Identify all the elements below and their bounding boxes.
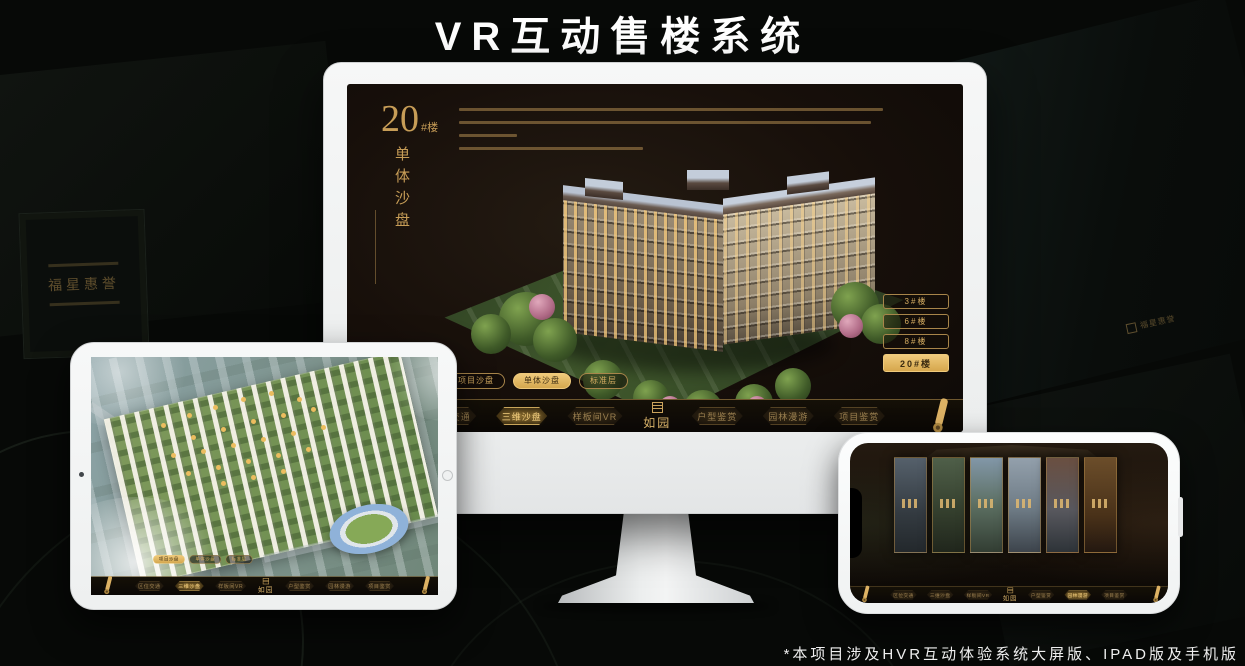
tree xyxy=(533,318,577,362)
tablet-device: 项目沙盘 单体沙盘 标准层 区位交通 三维沙盘 样板间VR 如园 户型鉴赏 园林… xyxy=(70,342,457,610)
gallery-strip[interactable] xyxy=(894,457,927,553)
plaque-text: 福星惠誉 xyxy=(48,273,121,296)
page: 福星惠誉 福星惠誉 VR互动售楼系统 20#楼 单体沙盘 xyxy=(0,0,1245,666)
building-markers[interactable] xyxy=(161,423,166,428)
seal-icon xyxy=(263,578,269,584)
description-line xyxy=(459,121,871,124)
scroll-icon[interactable] xyxy=(931,398,949,432)
tab-standard-floor[interactable]: 标准层 xyxy=(579,373,628,389)
nav-item-label: 三维沙盘 xyxy=(178,582,201,589)
tab-single-sandbox[interactable]: 单体沙盘 xyxy=(513,373,571,389)
nav-item-label: 区位交通 xyxy=(893,591,914,598)
nav-item-label: 项目鉴赏 xyxy=(839,410,879,423)
roof-cap xyxy=(687,170,729,190)
nav-logo[interactable]: 如园 xyxy=(258,578,274,594)
phone-notch xyxy=(850,488,862,558)
nav-item-unit-plans[interactable]: 户型鉴赏 xyxy=(1026,590,1056,600)
tablet-camera xyxy=(79,472,84,477)
nav-item-label: 样板间VR xyxy=(573,410,618,423)
block-header: 20#楼 单体沙盘 xyxy=(381,100,438,234)
scroll-icon[interactable] xyxy=(1152,585,1160,603)
nav-logo[interactable]: 如园 xyxy=(643,402,671,431)
scroll-icon[interactable] xyxy=(103,576,112,595)
nav-item-showroom-vr[interactable]: 样板间VR xyxy=(213,580,248,591)
gallery-strip[interactable] xyxy=(932,457,965,553)
nav-item-label: 三维沙盘 xyxy=(930,591,951,598)
floor-button-8[interactable]: 8#楼 xyxy=(883,334,949,349)
tab-single-sandbox[interactable]: 单体沙盘 xyxy=(189,555,221,564)
block-suffix: #楼 xyxy=(421,122,438,134)
nav-item-3d-sandbox[interactable]: 三维沙盘 xyxy=(925,590,955,600)
tablet-home-button[interactable] xyxy=(442,470,453,481)
nav-item-location-traffic[interactable]: 区位交通 xyxy=(133,580,166,591)
gallery-strips xyxy=(894,457,1117,553)
gallery-strip[interactable] xyxy=(970,457,1003,553)
page-title: VR互动售楼系统 xyxy=(0,4,1245,62)
tablet-bottom-nav: 区位交通 三维沙盘 样板间VR 如园 户型鉴赏 园林漫游 项目鉴赏 xyxy=(91,576,438,595)
tablet-screen: 项目沙盘 单体沙盘 标准层 区位交通 三维沙盘 样板间VR 如园 户型鉴赏 园林… xyxy=(91,357,438,595)
description-line xyxy=(459,108,883,111)
nav-item-showroom-vr[interactable]: 样板间VR xyxy=(962,590,994,600)
nav-item-3d-sandbox[interactable]: 三维沙盘 xyxy=(173,580,206,591)
nav-item-garden-roam[interactable]: 园林漫游 xyxy=(1063,590,1093,600)
brand-logo-icon xyxy=(1126,322,1138,334)
block-subtitle: 单体沙盘 xyxy=(391,146,412,234)
nav-item-label: 区位交通 xyxy=(138,582,161,589)
building-facade xyxy=(563,200,723,352)
nav-item-garden-roam[interactable]: 园林漫游 xyxy=(759,406,817,426)
building-3d-model[interactable] xyxy=(435,146,913,432)
nav-item-unit-plans[interactable]: 户型鉴赏 xyxy=(688,406,746,426)
tab-standard-floor[interactable]: 标准层 xyxy=(226,555,253,564)
nav-item-unit-plans[interactable]: 户型鉴赏 xyxy=(283,580,316,591)
floor-button-6[interactable]: 6#楼 xyxy=(883,314,949,329)
phone-device: 区位交通 三维沙盘 样板间VR 如园 户型鉴赏 园林漫游 项目鉴赏 xyxy=(838,432,1180,614)
floor-selector: 3#楼 6#楼 8#楼 20#楼 xyxy=(883,294,949,372)
plaque-decor-line xyxy=(48,262,118,267)
nav-item-label: 三维沙盘 xyxy=(502,410,542,423)
logo-text: 如园 xyxy=(258,585,274,595)
scroll-icon[interactable] xyxy=(421,576,430,595)
nav-item-label: 园林漫游 xyxy=(1067,591,1088,598)
nav-item-garden-roam[interactable]: 园林漫游 xyxy=(323,580,356,591)
blossom-tree xyxy=(529,294,555,320)
nav-item-label: 项目鉴赏 xyxy=(368,582,391,589)
logo-text: 如园 xyxy=(1003,593,1017,602)
footnote: *本项目涉及HVR互动体验系统大屏版、IPAD版及手机版 xyxy=(784,643,1239,664)
gallery-strip[interactable] xyxy=(1046,457,1079,553)
nav-logo[interactable]: 如园 xyxy=(1003,587,1017,602)
scroll-icon[interactable] xyxy=(861,585,869,603)
block-number: 20 xyxy=(381,98,419,140)
nav-item-label: 户型鉴赏 xyxy=(1031,591,1052,598)
seal-icon xyxy=(652,402,663,413)
seal-icon xyxy=(1007,587,1013,593)
nav-item-label: 园林漫游 xyxy=(768,410,808,423)
nav-item-label: 户型鉴赏 xyxy=(697,410,737,423)
roof-cap xyxy=(585,178,623,200)
tree xyxy=(471,314,511,354)
nav-item-project-gallery[interactable]: 项目鉴赏 xyxy=(363,580,396,591)
phone-side-button[interactable] xyxy=(1178,497,1183,537)
gallery-strip[interactable] xyxy=(1008,457,1041,553)
floor-button-3[interactable]: 3#楼 xyxy=(883,294,949,309)
nav-item-label: 户型鉴赏 xyxy=(288,582,311,589)
nav-item-label: 样板间VR xyxy=(218,582,243,589)
blossom-tree xyxy=(839,314,863,338)
tablet-view-mode-tabs: 项目沙盘 单体沙盘 标准层 xyxy=(153,555,253,564)
description-line xyxy=(459,134,517,137)
phone-bottom-nav: 区位交通 三维沙盘 样板间VR 如园 户型鉴赏 园林漫游 项目鉴赏 xyxy=(850,586,1168,603)
nav-item-3d-sandbox[interactable]: 三维沙盘 xyxy=(493,406,551,426)
monitor-stand xyxy=(556,511,756,603)
phone-screen: 区位交通 三维沙盘 样板间VR 如园 户型鉴赏 园林漫游 项目鉴赏 xyxy=(850,443,1168,603)
gallery-strip[interactable] xyxy=(1084,457,1117,553)
tab-project-sandbox[interactable]: 项目沙盘 xyxy=(153,555,185,564)
plaque-decor-line xyxy=(50,301,120,306)
nav-item-label: 园林漫游 xyxy=(328,582,351,589)
nav-item-location-traffic[interactable]: 区位交通 xyxy=(889,590,919,600)
background-plaque: 福星惠誉 xyxy=(20,210,149,358)
nav-item-label: 样板间VR xyxy=(967,591,990,598)
floor-button-20[interactable]: 20#楼 xyxy=(883,354,949,372)
logo-text: 如园 xyxy=(643,414,671,431)
view-mode-tabs: 项目沙盘 单体沙盘 标准层 xyxy=(447,373,628,389)
nav-item-showroom-vr[interactable]: 样板间VR xyxy=(564,406,627,426)
nav-item-project-gallery[interactable]: 项目鉴赏 xyxy=(1099,590,1129,600)
nav-item-label: 项目鉴赏 xyxy=(1104,591,1125,598)
vertical-decor-line xyxy=(375,210,376,284)
nav-item-project-gallery[interactable]: 项目鉴赏 xyxy=(830,406,888,426)
